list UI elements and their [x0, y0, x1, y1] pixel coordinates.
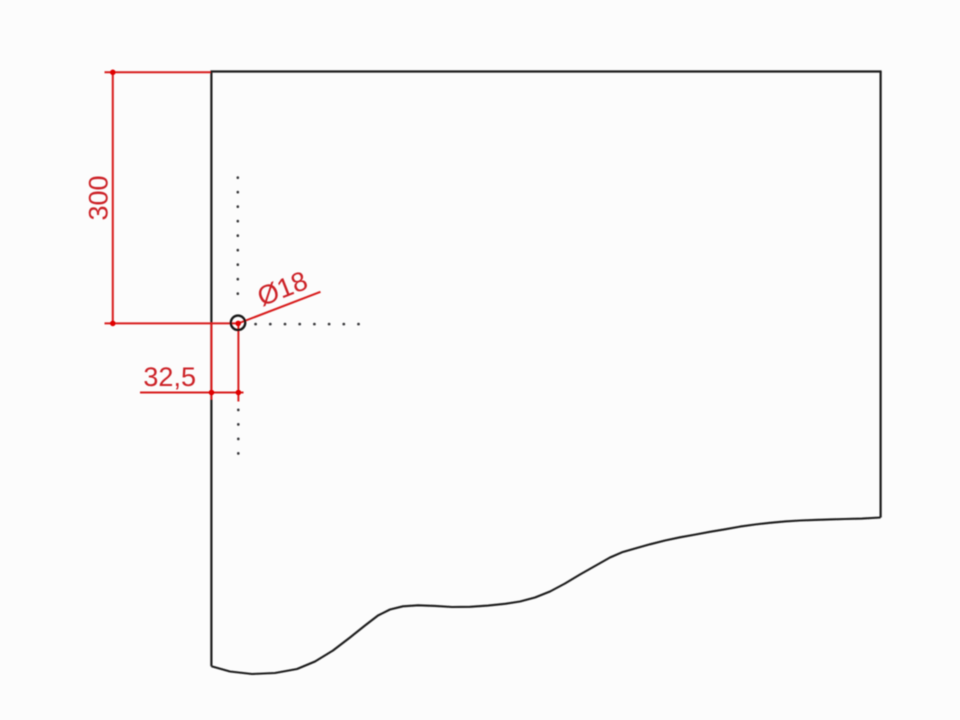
svg-text:300: 300 [84, 175, 114, 220]
svg-text:32,5: 32,5 [143, 362, 196, 392]
